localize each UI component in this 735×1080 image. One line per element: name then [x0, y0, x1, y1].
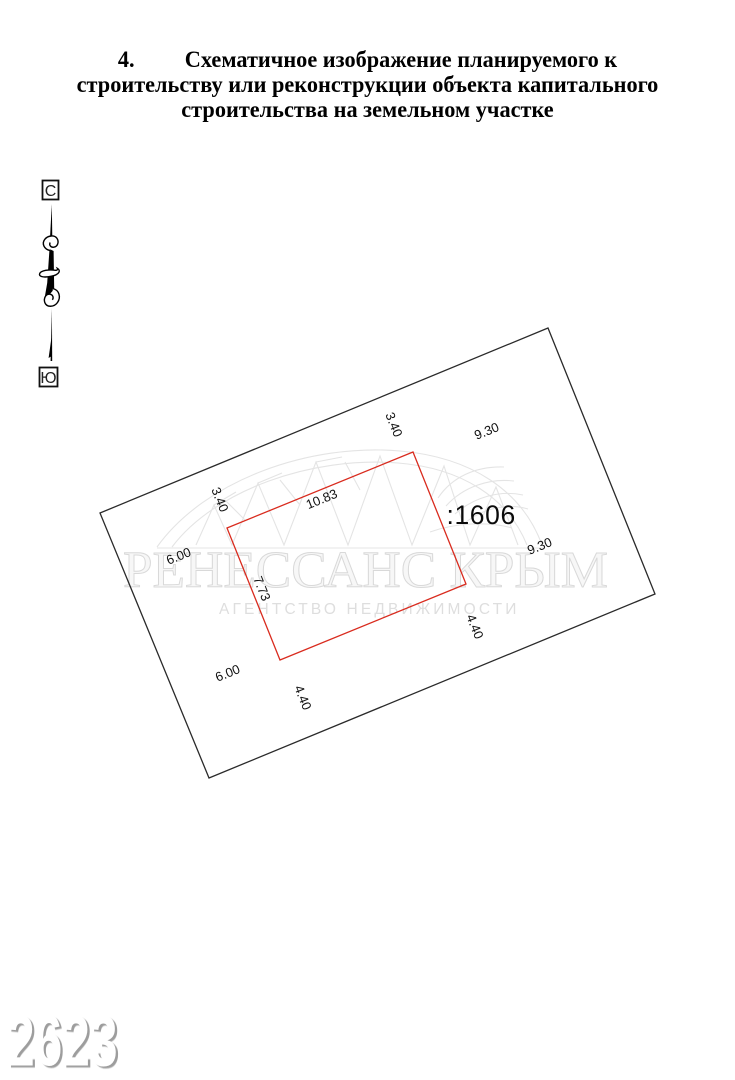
svg-text:3.40: 3.40: [382, 410, 405, 439]
svg-text:Ю: Ю: [40, 370, 56, 387]
svg-text:9.30: 9.30: [472, 419, 501, 442]
svg-text::1606: :1606: [447, 500, 516, 530]
svg-text:6.00: 6.00: [213, 661, 242, 684]
svg-text:С: С: [45, 183, 57, 200]
svg-text:2623: 2623: [7, 1002, 118, 1080]
svg-text:4.40: 4.40: [291, 683, 314, 712]
